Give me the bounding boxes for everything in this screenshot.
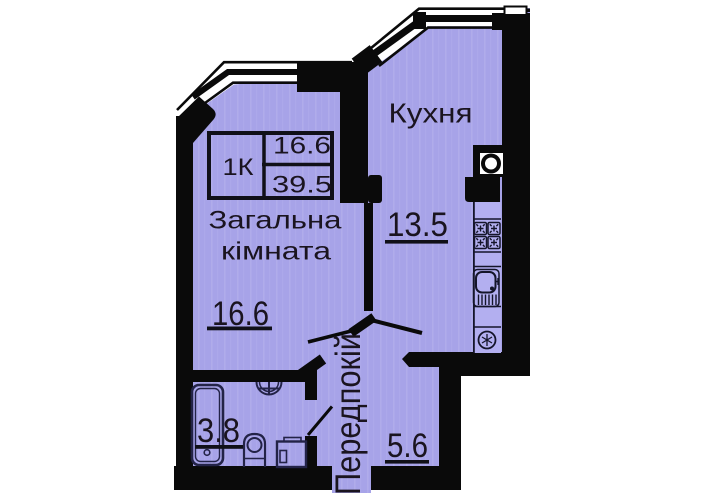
svg-text:5.6: 5.6 xyxy=(387,427,428,465)
svg-text:13.5: 13.5 xyxy=(387,206,448,244)
svg-text:кімната: кімната xyxy=(221,237,331,265)
svg-text:Передпокій: Передпокій xyxy=(329,333,368,495)
svg-text:Загальна: Загальна xyxy=(209,207,342,235)
svg-text:39.5: 39.5 xyxy=(272,172,332,199)
svg-text:Кухня: Кухня xyxy=(389,98,473,129)
svg-text:16.6: 16.6 xyxy=(273,133,331,160)
svg-text:1К: 1К xyxy=(223,154,254,181)
svg-text:3.8: 3.8 xyxy=(197,412,240,450)
